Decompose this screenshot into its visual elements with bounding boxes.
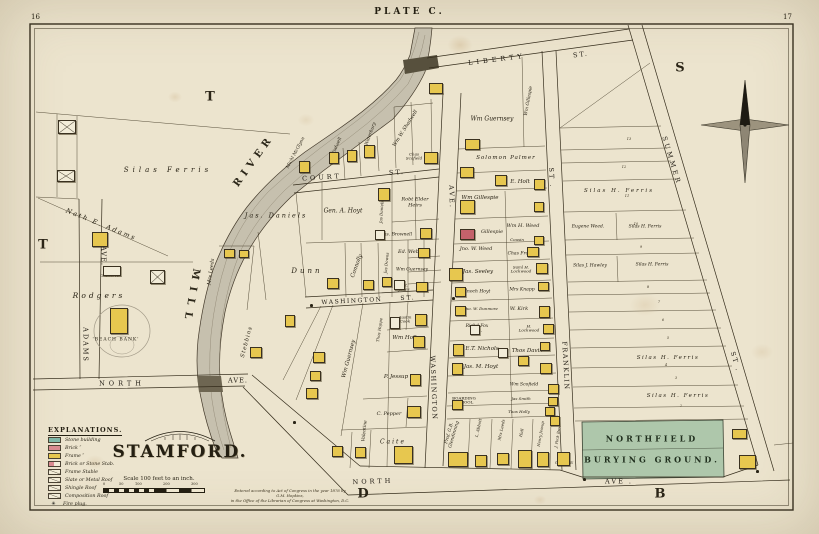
map-label: Enoch Hoyt (464, 289, 491, 294)
building (327, 278, 339, 289)
copyright-note: Entered according to Act of Congress in … (230, 489, 350, 504)
building (363, 280, 374, 290)
map-label: 5 (667, 337, 669, 341)
building (518, 450, 532, 468)
map-label: Wm Guernsey (471, 117, 514, 124)
building (310, 371, 321, 381)
title-ornament-icon (135, 428, 225, 442)
map-label: Wm Scofield (510, 382, 539, 387)
title-block: STAMFORD. (112, 428, 248, 462)
building (527, 247, 539, 257)
legend-item: Frame Stable (48, 468, 173, 476)
map-label: Silas H. Ferris (647, 393, 710, 399)
map-label: Saml H.Lockwood (511, 266, 532, 275)
building (394, 446, 413, 464)
street-label: ADAMS (81, 327, 88, 363)
map-label: 13 (627, 138, 631, 142)
building (470, 325, 480, 335)
map-label: Rodgers (73, 292, 126, 300)
building (732, 429, 747, 439)
map-label: Cousin (510, 238, 524, 242)
section-letter: S (675, 62, 684, 77)
legend-item-label: Stone building (65, 438, 101, 443)
building (495, 175, 507, 186)
legend-item-label: Fire plug. (63, 502, 87, 507)
map-label: Silas H. Ferris (636, 262, 669, 267)
section-letter: D (357, 488, 368, 503)
map-label: Jas. Brownell (382, 232, 412, 237)
street-label: NORTH (352, 478, 393, 487)
building (534, 236, 544, 245)
scale-tick: 50 (119, 482, 123, 486)
plug-swatch-icon: ✳ (48, 502, 59, 507)
comp-swatch-icon (48, 493, 61, 500)
building (347, 150, 357, 162)
scale-block: Scale 100 feet to an inch. 050100200300 (103, 476, 215, 493)
map-label: Wm Guernsey (396, 267, 428, 272)
map-label: E.T. Nichols (465, 346, 498, 352)
stone-swatch-icon (48, 437, 61, 444)
map-label: Silas J. Hawley (573, 263, 607, 268)
building (460, 200, 475, 214)
building (92, 232, 108, 247)
frame-swatch-icon (48, 453, 61, 460)
street-label: AVE . (605, 478, 633, 485)
map-label: 12 (622, 166, 626, 170)
building (378, 188, 390, 201)
street-label: AVE. (447, 185, 455, 209)
building (306, 388, 318, 399)
scale-ticks: 050100200300 (103, 482, 215, 487)
street-label: ST. (400, 295, 415, 303)
building (548, 397, 558, 406)
building (534, 202, 544, 212)
building (534, 179, 545, 190)
city-title: STAMFORD. (112, 442, 248, 462)
legend-item-label: Brick ″ (65, 446, 81, 451)
scale-tick: 300 (191, 482, 198, 486)
map-label: 11 (625, 195, 629, 199)
map-label: Gen. A. Hoyt (324, 209, 363, 216)
fire-plug-icon (756, 470, 759, 473)
shingle-swatch-icon (48, 485, 61, 492)
building (224, 249, 235, 258)
building (407, 406, 421, 418)
map-label: ChasScofield (406, 153, 422, 162)
building (58, 120, 76, 134)
scale-tick: 100 (135, 482, 142, 486)
map-label: 6 (662, 319, 664, 323)
map-label: 10 (634, 223, 638, 227)
map-label: 7 (658, 301, 660, 305)
building (382, 277, 392, 287)
street-label: AVE. (99, 246, 106, 266)
building (538, 282, 549, 291)
map-label: Thos Davis (512, 348, 542, 354)
map-label: Eugene Weed. (572, 224, 605, 229)
building (390, 317, 400, 329)
map-label: E. Holt (510, 179, 530, 185)
map-label: Silas H. Ferris (637, 355, 700, 361)
map-label: Dunn (291, 268, 322, 276)
fire-plug-icon (310, 304, 313, 307)
building (545, 407, 555, 416)
map-label: NORTHFIELD (606, 435, 698, 444)
building (475, 455, 487, 467)
building (250, 347, 262, 358)
building (410, 374, 421, 386)
building (498, 348, 508, 358)
building (355, 447, 366, 458)
map-label: Jno. W. Weed (460, 247, 493, 253)
building (329, 152, 339, 164)
map-label: BURYING GROUND. (584, 456, 720, 465)
building (57, 170, 75, 182)
brick-swatch-icon (48, 445, 61, 452)
building (455, 287, 466, 297)
building (394, 280, 405, 290)
section-letter: T (205, 91, 215, 106)
building (420, 228, 432, 239)
building (536, 263, 548, 274)
building (518, 356, 529, 366)
fire-plug-icon (583, 478, 586, 481)
legend-item-label: Frame ″ (65, 454, 84, 459)
building (150, 270, 165, 284)
map-label: 2 (680, 405, 682, 409)
building (418, 248, 430, 258)
building (460, 167, 474, 178)
map-label: 'BEACH BANK' (93, 337, 140, 342)
fire-plug-icon (293, 421, 296, 424)
legend-item-label: Brick or Stone Stab. (65, 462, 114, 467)
legend-item-label: Frame Stable (65, 470, 98, 475)
building (375, 230, 385, 240)
map-label: Silas Ferris (124, 167, 212, 175)
building (537, 452, 549, 467)
map-label: Solomon Palmer (476, 155, 536, 161)
building (557, 452, 570, 466)
building (429, 83, 443, 94)
map-label: P. Jessup (384, 374, 408, 380)
legend-item: ✳Fire plug. (48, 500, 173, 508)
street-label: ST . (547, 167, 555, 188)
building (455, 306, 466, 316)
building (453, 344, 464, 356)
street-label: AVE. (228, 377, 248, 384)
map-page: 16 PLATE C. 17 (0, 0, 819, 534)
building (364, 145, 375, 158)
compass-rose-icon (701, 80, 789, 183)
building (110, 308, 128, 334)
building (465, 139, 480, 150)
map-label: Wm H. Weed (507, 224, 540, 230)
building (332, 446, 343, 457)
map-label: Mrs Knapp (509, 287, 534, 292)
map-label: Robt ElderHeirs (401, 197, 428, 208)
section-letter: B (655, 488, 666, 503)
building (448, 452, 468, 467)
street-label: ST. (389, 169, 405, 177)
legend-item: Composition Roof (48, 492, 173, 500)
map-label: 3 (675, 377, 677, 381)
scale-tick: 200 (163, 482, 170, 486)
building (540, 342, 550, 351)
street-label: NORTH (99, 380, 145, 387)
brick-stable-swatch-icon (48, 461, 61, 468)
building (452, 363, 463, 375)
map-label: Jas. Daniels (245, 212, 308, 219)
scale-bar (103, 488, 205, 493)
building (543, 324, 554, 334)
building (452, 400, 463, 410)
building (550, 416, 560, 426)
map-label: 8 (647, 286, 649, 290)
building (299, 161, 310, 173)
river-bridge (197, 376, 223, 392)
legend-item-label: Shingle Roof (65, 486, 96, 491)
map-label: 9 (640, 246, 642, 250)
map-label: AustinCook (399, 316, 412, 325)
legend-item-label: Composition Roof (65, 494, 108, 499)
building (103, 266, 121, 276)
map-label: Silas H. Ferris (584, 188, 654, 194)
map-label: Jas Smith (511, 397, 530, 401)
map-label: H.Lockwood (519, 325, 540, 334)
building (413, 336, 425, 348)
map-label: Gillespie (481, 230, 503, 236)
river-dam (403, 55, 439, 74)
street-label: FRANKLIN (560, 341, 570, 391)
scale-tick: 0 (103, 482, 105, 486)
map-label: 4 (665, 364, 667, 368)
map-label: C. Pepper (377, 412, 402, 418)
section-letter: T (38, 239, 48, 254)
map-label: Jno. W. Dunmore (464, 307, 498, 311)
building (239, 250, 249, 258)
building (497, 453, 509, 465)
building (424, 152, 438, 164)
building (548, 384, 559, 394)
map-label: Jas. M. Hoyt (464, 364, 498, 370)
building (539, 306, 550, 318)
building (416, 282, 428, 292)
building (449, 268, 463, 281)
fire-plug-icon (452, 297, 455, 300)
slate-swatch-icon (48, 477, 61, 484)
street-label: WASHINGTON (428, 355, 438, 420)
building (313, 352, 325, 363)
building (540, 363, 552, 374)
frame-stable-swatch-icon (48, 469, 61, 476)
building (285, 315, 295, 327)
building (739, 455, 756, 469)
map-label: W. Kirk (510, 307, 528, 313)
building (415, 314, 427, 326)
map-label: Thos Holly (508, 410, 530, 414)
map-label: Jas. Seeley (463, 269, 493, 275)
building (460, 229, 475, 240)
